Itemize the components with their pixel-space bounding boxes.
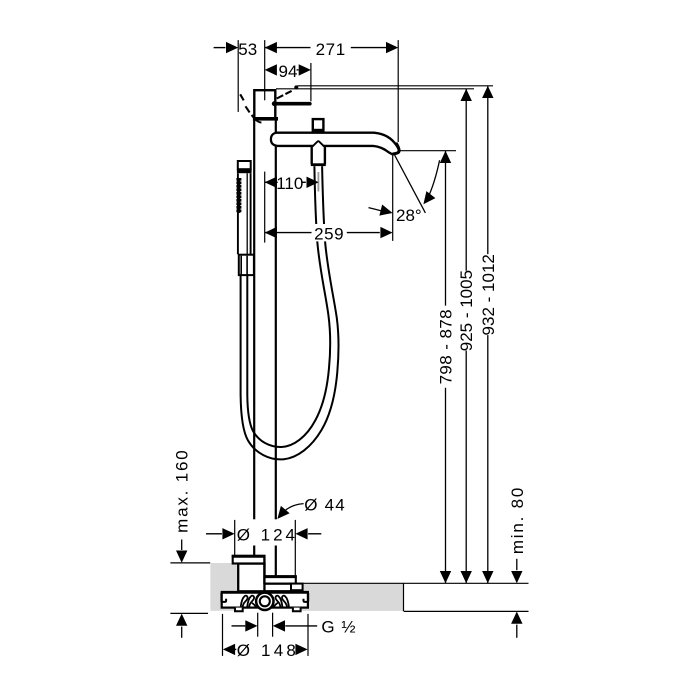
svg-text:110: 110 — [276, 174, 303, 193]
svg-text:Ø 124: Ø 124 — [237, 526, 298, 545]
svg-text:259: 259 — [314, 225, 344, 244]
svg-text:53: 53 — [238, 40, 257, 59]
svg-text:94: 94 — [279, 62, 298, 81]
svg-text:28°: 28° — [396, 206, 422, 225]
svg-text:Ø 44: Ø 44 — [304, 496, 346, 515]
svg-text:271: 271 — [316, 40, 346, 59]
svg-text:932 - 1012: 932 - 1012 — [479, 254, 498, 335]
svg-text:max. 160: max. 160 — [173, 449, 192, 533]
svg-text:G ½: G ½ — [321, 617, 356, 636]
svg-text:925 - 1005: 925 - 1005 — [457, 270, 476, 351]
svg-text:798 - 878: 798 - 878 — [436, 309, 455, 384]
svg-text:min. 80: min. 80 — [508, 486, 527, 554]
svg-text:Ø 148: Ø 148 — [237, 641, 299, 660]
